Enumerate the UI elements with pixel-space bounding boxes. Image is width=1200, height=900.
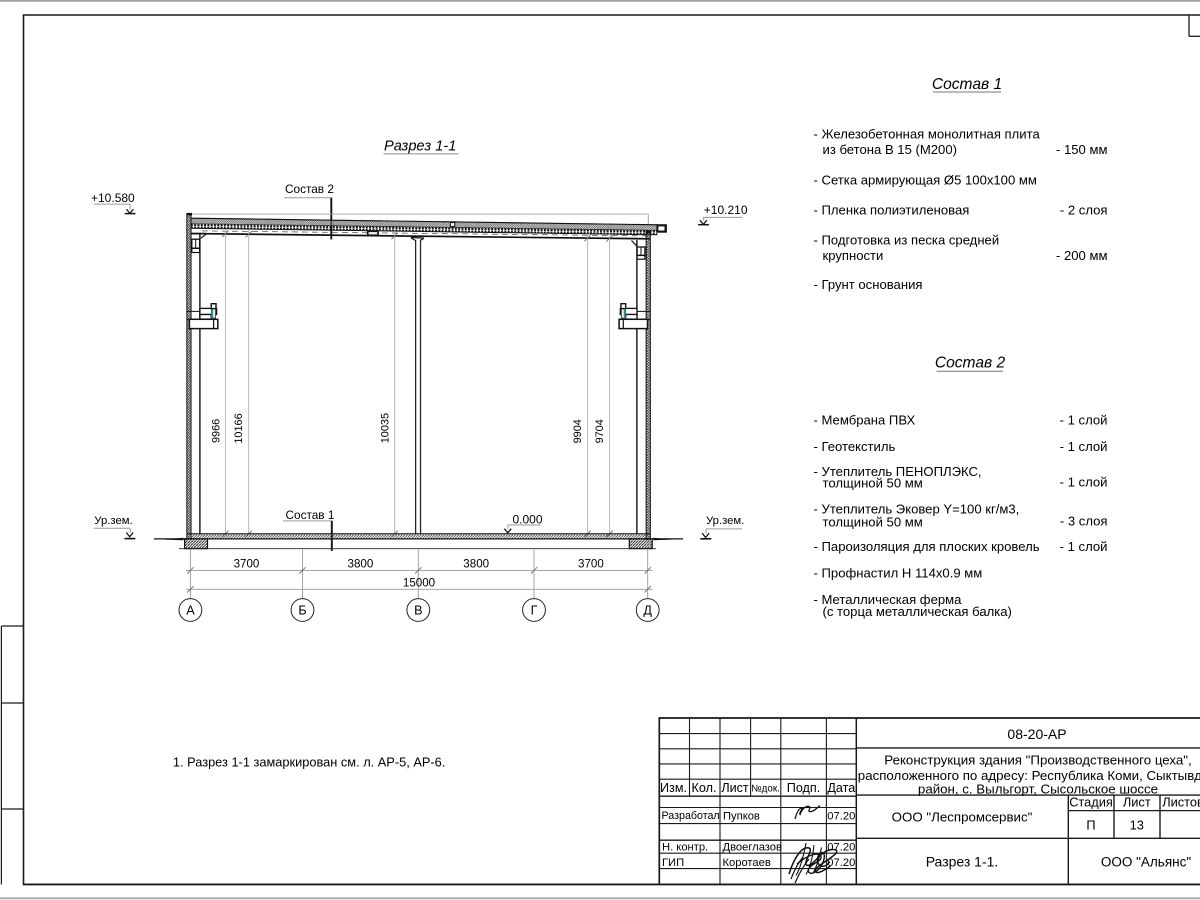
svg-text:Подп.: Подп. (787, 781, 820, 795)
svg-text:А: А (186, 604, 195, 618)
svg-text:(с торца металлическая балка): (с торца металлическая балка) (823, 604, 1012, 619)
svg-text:Д: Д (643, 604, 652, 618)
svg-text:Кол.: Кол. (692, 781, 717, 795)
svg-text:- Сетка армирующая Ø5 100х100: - Сетка армирующая Ø5 100х100 мм (814, 173, 1037, 188)
svg-text:1. Разрез 1-1 замаркирован см.: 1. Разрез 1-1 замаркирован см. л. АР-5, … (173, 754, 445, 769)
svg-text:07.20: 07.20 (827, 810, 855, 822)
svg-text:ГИП: ГИП (662, 857, 684, 869)
svg-text:- 3 слоя: - 3 слоя (1060, 514, 1108, 529)
svg-text:+10.210: +10.210 (704, 203, 748, 217)
svg-text:из бетона В 15 (М200): из бетона В 15 (М200) (823, 142, 958, 157)
svg-text:15000: 15000 (403, 576, 435, 589)
svg-text:- Подготовка из песка средней: - Подготовка из песка средней (814, 232, 1000, 247)
svg-text:- Пароизоляция для плоских кро: - Пароизоляция для плоских кровель (814, 539, 1040, 554)
svg-text:Лист: Лист (1123, 795, 1151, 810)
svg-text:3800: 3800 (348, 557, 374, 570)
svg-text:Стадия: Стадия (1069, 795, 1113, 810)
svg-text:Состав 1: Состав 1 (932, 76, 1002, 93)
svg-text:крупности: крупности (823, 248, 884, 263)
svg-text:Состав 2: Состав 2 (935, 355, 1006, 372)
svg-text:Состав 2: Состав 2 (285, 182, 334, 196)
svg-text:№док.: №док. (751, 784, 780, 795)
svg-text:Реконструкция здания "Производ: Реконструкция здания "Производственного … (884, 753, 1191, 768)
svg-text:- 1 слой: - 1 слой (1060, 474, 1108, 489)
svg-text:- Мембрана ПВХ: - Мембрана ПВХ (814, 412, 916, 427)
svg-text:3700: 3700 (578, 557, 604, 570)
svg-text:07.20: 07.20 (827, 857, 855, 869)
svg-text:13: 13 (1130, 818, 1144, 833)
svg-text:- Геотекстиль: - Геотекстиль (814, 439, 896, 454)
svg-text:- 150 мм: - 150 мм (1056, 142, 1108, 157)
svg-text:3800: 3800 (463, 557, 489, 570)
svg-text:П: П (1086, 818, 1095, 833)
svg-text:Изм.: Изм. (660, 781, 687, 795)
svg-text:- 1 слой: - 1 слой (1060, 412, 1108, 427)
svg-text:толщиной 50 мм: толщиной 50 мм (823, 514, 923, 529)
svg-text:- Железобетонная монолитная п: - Железобетонная монолитная плита (814, 126, 1041, 141)
svg-text:Разрез 1-1: Разрез 1-1 (384, 139, 456, 155)
svg-text:Г: Г (531, 604, 538, 618)
svg-text:- 2 слоя: - 2 слоя (1060, 203, 1108, 218)
svg-text:Разработал: Разработал (662, 810, 720, 822)
svg-text:толщиной 50 мм: толщиной 50 мм (823, 475, 923, 490)
svg-text:10166: 10166 (233, 413, 245, 443)
svg-text:0.000: 0.000 (513, 512, 543, 526)
svg-text:Лист: Лист (721, 781, 749, 795)
svg-text:Н. контр.: Н. контр. (662, 841, 708, 853)
svg-text:Двоеглазов: Двоеглазов (723, 841, 783, 853)
svg-text:- 1 слой: - 1 слой (1060, 439, 1108, 454)
svg-text:Пупков: Пупков (723, 810, 760, 822)
svg-text:07.20: 07.20 (827, 841, 855, 853)
svg-text:3700: 3700 (234, 557, 260, 570)
svg-text:9904: 9904 (572, 419, 584, 443)
svg-text:Разрез 1-1.: Разрез 1-1. (926, 853, 999, 869)
svg-text:- Профнастил Н 114х0.9 мм: - Профнастил Н 114х0.9 мм (814, 566, 983, 581)
svg-text:- 200 мм: - 200 мм (1056, 248, 1108, 263)
svg-text:9966: 9966 (210, 419, 222, 443)
svg-text:В: В (414, 604, 422, 618)
svg-text:Коротаев: Коротаев (723, 857, 771, 869)
svg-text:ООО "Леспромсервис": ООО "Леспромсервис" (892, 809, 1033, 824)
svg-text:+10.580: +10.580 (91, 191, 135, 205)
svg-text:ООО "Альянс": ООО "Альянс" (1101, 854, 1191, 869)
svg-text:Листов: Листов (1162, 795, 1200, 810)
svg-text:- Пленка полиэтиленовая: - Пленка полиэтиленовая (814, 203, 970, 218)
svg-text:Ур.зем.: Ур.зем. (94, 515, 132, 527)
svg-text:Дата: Дата (827, 781, 855, 795)
svg-text:- Грунт основания: - Грунт основания (814, 277, 923, 292)
svg-text:Б: Б (298, 604, 306, 618)
svg-text:08-20-АР: 08-20-АР (1007, 726, 1066, 742)
svg-text:Состав 1: Состав 1 (286, 508, 335, 522)
svg-text:- 1 слой: - 1 слой (1060, 539, 1108, 554)
svg-text:Ур.зем.: Ур.зем. (706, 515, 744, 527)
svg-text:10035: 10035 (379, 413, 391, 443)
svg-text:9704: 9704 (594, 419, 606, 443)
